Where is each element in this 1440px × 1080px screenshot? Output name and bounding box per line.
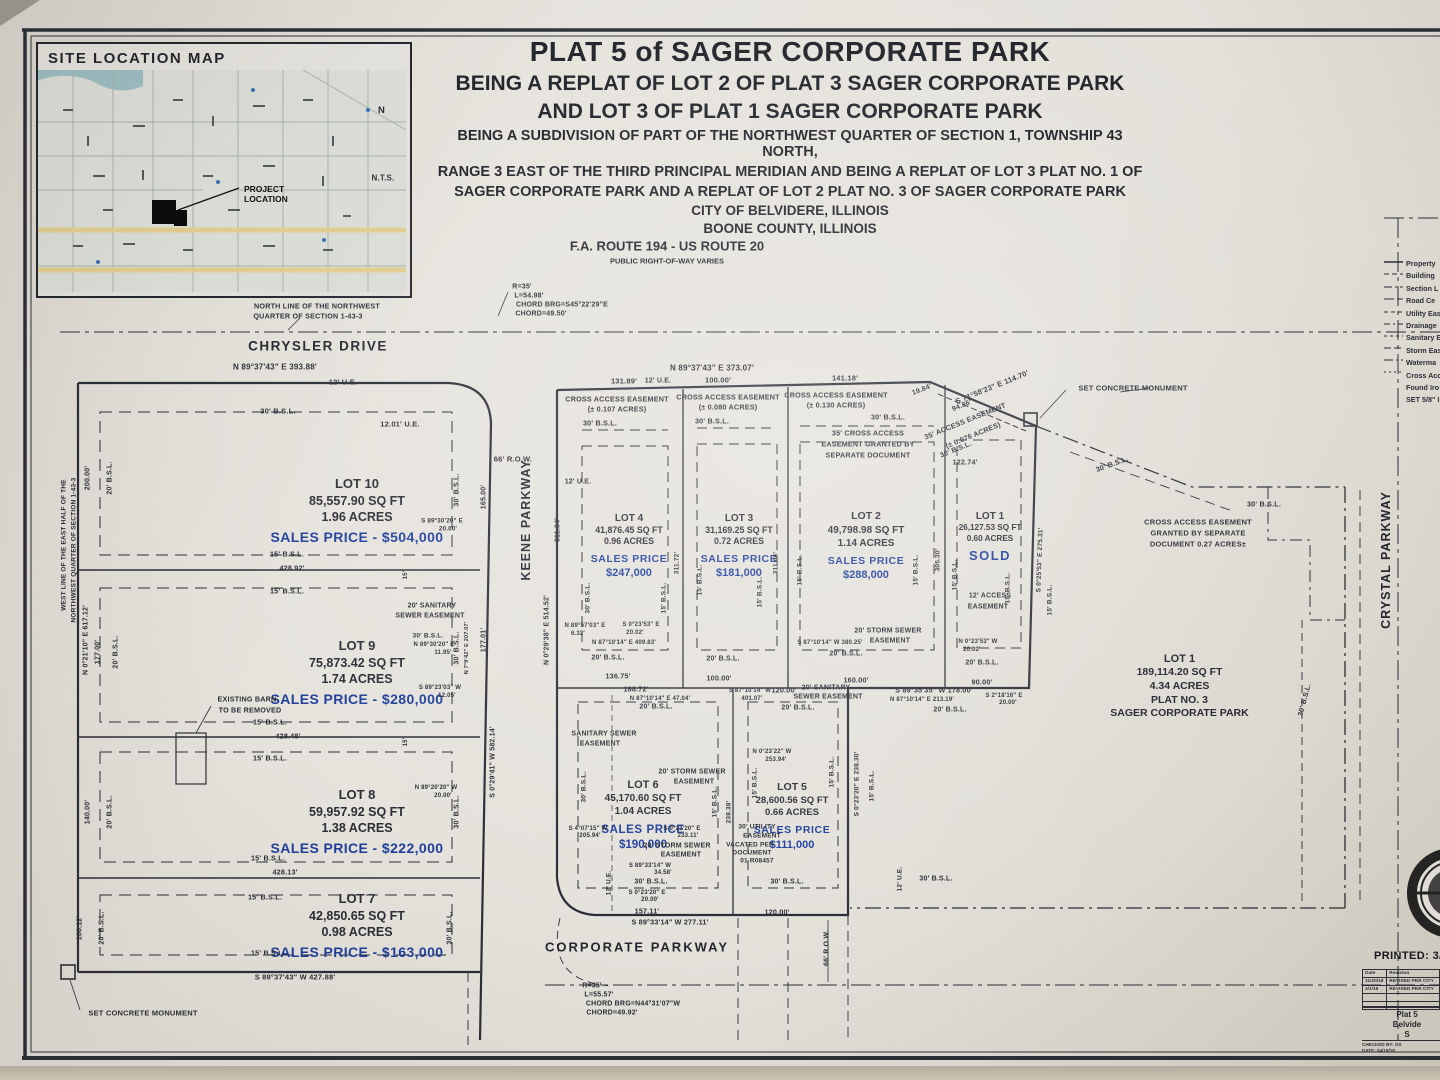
dim-label: 30' B.S.L. <box>919 876 952 883</box>
revision-cell: 3/1/19 <box>1363 986 1387 994</box>
revision-cell <box>1387 994 1440 1002</box>
printed-date: PRINTED: 3/1/2 <box>1374 950 1440 962</box>
plat-description-3: SAGER CORPORATE PARK AND A REPLAT OF LOT… <box>430 184 1150 200</box>
dim-label: 12.01' U.E. <box>380 420 419 429</box>
dim-label: 305.30' <box>935 549 942 572</box>
lot-name: LOT 1 <box>944 510 1036 523</box>
dim-label: SANITARY SEWER <box>571 731 636 738</box>
dim-label: DOCUMENT <box>732 850 771 857</box>
lot-name: LOT 10 <box>228 476 486 493</box>
dim-label: 401.07' <box>741 696 762 702</box>
lot-acres: 1.04 ACRES <box>570 805 716 818</box>
dim-label: 428.48' <box>275 732 300 741</box>
lot-card-1-plat3: LOT 1 189,114.20 SQ FT 4.34 ACRES PLAT N… <box>1077 652 1282 721</box>
dim-label: 15' B.S.L. <box>1005 573 1012 604</box>
dim-label: NORTHWEST QUARTER OF SECTION 1-43-3 <box>71 478 78 623</box>
dim-label: 20.02' <box>626 630 644 636</box>
dim-label: 12' U.E. <box>645 378 672 385</box>
lot-name: LOT 1 <box>1077 652 1282 666</box>
plat-photo: { "site_map": { "title": "SITE LOCATION … <box>0 0 1440 1080</box>
dim-label: S 89°35'35" W 178.00' <box>895 686 972 695</box>
dim-label: 20' SANITARY <box>408 603 457 610</box>
dim-label: 100.00' <box>706 674 731 683</box>
dim-label: 311.72' <box>674 552 681 574</box>
dim-label: 12' U.E. <box>897 867 904 892</box>
lot-area: 75,873.42 SQ FT <box>228 655 486 671</box>
dim-label: 428.13' <box>272 868 297 877</box>
dim-label: N 89°20'20" W <box>415 785 458 791</box>
dim-label: 238.38' <box>726 801 733 824</box>
lot-area: 59,957.92 SQ FT <box>228 804 486 820</box>
dim-label: 100.12' <box>77 916 84 940</box>
plat-description-2: RANGE 3 EAST OF THE THIRD PRINCIPAL MERI… <box>430 164 1150 180</box>
dim-label: SEWER EASEMENT <box>395 613 464 620</box>
dim-label: S 0°23'53" E <box>622 622 659 628</box>
dim-label: 233.11' <box>678 833 699 839</box>
lot-acres: 4.34 ACRES <box>1077 680 1282 694</box>
dim-label: S 89°23'03" W <box>419 685 461 691</box>
plat-city: CITY OF BELVIDERE, ILLINOIS <box>430 203 1150 218</box>
site-location-map: SITE LOCATION MAP PROJECT LOCATION <box>36 42 412 298</box>
dim-label: 122.74' <box>952 458 977 467</box>
legend-item: SET 5/8" I.P <box>1406 394 1440 406</box>
dim-label: 15' B.S.L. <box>752 768 759 799</box>
dim-label: 131.89' <box>611 377 637 386</box>
dim-label: CROSS ACCESS EASEMENT <box>565 395 668 404</box>
dim-label: 20' B.S.L. <box>591 655 624 662</box>
dim-label: EASEMENT <box>661 852 702 859</box>
dim-label: 34.58' <box>654 870 672 876</box>
dim-label: EASEMENT <box>968 604 1009 611</box>
dim-label: 15' B.S.L. <box>253 718 287 727</box>
dim-label: EASEMENT GRANTED BY <box>821 440 914 449</box>
dim-label: 30' B.S.L. <box>454 795 461 828</box>
plat-description-1: BEING A SUBDIVISION OF PART OF THE NORTH… <box>430 128 1150 160</box>
lot-name: LOT 4 <box>570 512 688 525</box>
nts-label: N.T.S. <box>372 174 395 183</box>
plat-title: PLAT 5 of SAGER CORPORATE PARK <box>430 36 1150 68</box>
dim-label: S 4°07'15" W <box>569 826 608 832</box>
road-label-crystal: CRYSTAL PARKWAY <box>1379 491 1393 629</box>
dim-label: VACATED PER <box>726 842 774 849</box>
dim-label: 35' CROSS ACCESS <box>832 429 904 438</box>
legend-item: Waterma <box>1406 357 1440 369</box>
dim-label: 30' B.S.L. <box>454 631 461 664</box>
dim-label: NORTH LINE OF THE NORTHWEST <box>254 302 380 311</box>
dim-label: 20' STORM SEWER <box>658 769 725 776</box>
dim-label: 30' B.S.L. <box>583 419 617 428</box>
dim-label: 30' B.S.L. <box>581 772 588 803</box>
lot-price-label: SALES PRICE <box>570 553 688 567</box>
dim-label: 20' B.S.L. <box>781 705 814 712</box>
dim-label: 177.00' <box>95 640 102 664</box>
dim-label: 136.75' <box>605 672 630 681</box>
dim-label: 30' B.S.L. <box>447 911 454 944</box>
dim-label: N 7°9'42" E 207.07' <box>464 622 470 675</box>
dim-label: S 87°10'14" W 380.25' <box>797 640 862 646</box>
titleblock-line: Belvide <box>1362 1020 1440 1030</box>
dim-label: 30' UTILITY <box>738 824 775 831</box>
dim-label: 66' R.O.W. <box>494 455 532 464</box>
dim-label: 428.92' <box>279 564 304 573</box>
dim-label: 15' B.S.L. <box>697 565 704 596</box>
dim-label: 20' B.S.L. <box>107 795 114 828</box>
revision-header: Date <box>1363 970 1387 978</box>
dim-label: CROSS ACCESS EASEMENT <box>1144 518 1252 527</box>
dim-label: CHORD BRG=S45°22'29"E <box>516 302 608 309</box>
dim-label: 20' B.S.L. <box>99 911 106 944</box>
checked-date: DATE: 04/19/18 <box>1362 1048 1440 1054</box>
dim-label: 15' B.S.L. <box>270 587 304 596</box>
lot-area: 49,798.98 SQ FT <box>790 524 942 537</box>
legend-column: PropertyBuildingSection LRoad CeUtility … <box>1406 258 1440 407</box>
titleblock-line: Plat 5 <box>1362 1010 1440 1020</box>
site-map-image <box>38 70 406 292</box>
dim-label: 12' U.E. <box>329 378 357 387</box>
legend-item: Section L <box>1406 283 1440 295</box>
dim-label: 20.00' <box>439 526 457 533</box>
legend-item: Sanitary E <box>1406 332 1440 344</box>
dim-label: 20' B.S.L. <box>113 635 120 668</box>
dim-label: 15' <box>403 571 409 580</box>
dim-label: 15' B.S.L. <box>869 771 876 802</box>
lot-area: 189,114.20 SQ FT <box>1077 666 1282 680</box>
dim-label: S 0°29'41" W 582.14' <box>490 726 497 797</box>
plat-subtitle-1: BEING A REPLAT OF LOT 2 OF PLAT 3 SAGER … <box>430 72 1150 96</box>
dim-label: 30' B.S.L. <box>260 407 295 416</box>
dim-label: 30' B.S.L. <box>413 633 444 640</box>
dim-label: SET CONCRETE MONUMENT <box>88 1009 197 1018</box>
lot-acres: 0.60 ACRES <box>944 534 1036 545</box>
dim-label: 15' <box>403 738 409 747</box>
legend-item: Storm Eas <box>1406 345 1440 357</box>
dim-label: 15' B.S.L. <box>1047 585 1054 616</box>
dim-label: 11.95' <box>434 650 451 656</box>
dim-label: 20.00' <box>999 700 1017 706</box>
legend-item: Utility Eas <box>1406 308 1440 320</box>
revision-header: Revision <box>1387 970 1440 978</box>
dim-label: S 0°23'20" E 238.30' <box>854 752 861 817</box>
dim-label: 15' B.S.L. <box>253 754 287 763</box>
dim-label: CROSS ACCESS EASEMENT <box>676 393 779 402</box>
dim-label: EASEMENT <box>674 779 715 786</box>
dim-label: 15' B.S.L. <box>251 854 285 863</box>
dim-label: 311.84' <box>555 518 562 542</box>
legend-item: Property <box>1406 258 1440 270</box>
revision-cell: REVISED PER CITY <box>1387 978 1440 986</box>
legend-item: Found Iro <box>1406 382 1440 394</box>
plat-subtitle-2: AND LOT 3 OF PLAT 1 SAGER CORPORATE PARK <box>430 100 1150 124</box>
dim-label: 15' B.S.L. <box>712 787 719 818</box>
dim-label: 12' U.E. <box>565 479 592 486</box>
dim-label: R=35' <box>582 983 602 990</box>
dim-label: N 0°23'53" W <box>958 639 997 645</box>
dim-label: S 89°30'20" E <box>421 518 463 525</box>
dim-label: N 87°10'14" E 409.83' <box>592 640 656 646</box>
dim-label: SEWER EASEMENT <box>793 694 862 701</box>
dim-label: SET CONCRETE MONUMENT <box>1078 384 1187 393</box>
dim-label: CHORD=49.50' <box>515 311 566 318</box>
dim-label: 30' B.S.L. <box>695 417 729 426</box>
dim-label: 200.00' <box>85 466 92 490</box>
north-arrow-letter: N <box>378 105 385 116</box>
engineer-seal <box>1410 853 1440 933</box>
dim-label: 30' B.S.L. <box>454 473 461 506</box>
dim-label: 30' B.S.L. <box>770 879 803 886</box>
titleblock-project: Plat 5 Belvide S <box>1362 1006 1440 1040</box>
road-label-corporate: CORPORATE PARKWAY <box>545 940 729 955</box>
dim-label: 15' B.S.L. <box>952 560 959 591</box>
dim-label: 20' STORM SEWER <box>854 628 921 635</box>
dim-label: 253.94' <box>765 757 786 763</box>
dim-label: 12.05' <box>438 693 456 699</box>
dim-label: TO BE REMOVED <box>219 706 282 715</box>
lot-card-4: LOT 4 41,876.45 SQ FT 0.96 ACRES SALES P… <box>570 512 688 581</box>
lot-card-1: LOT 1 26,127.53 SQ FT 0.60 ACRES SOLD <box>944 510 1036 565</box>
dim-label: S 89°33'14" W 277.11' <box>631 918 708 927</box>
dim-label: 160.00' <box>843 676 868 685</box>
revision-cell <box>1363 994 1387 1002</box>
title-block: PLAT 5 of SAGER CORPORATE PARK BEING A R… <box>430 36 1150 236</box>
dim-label: 30' B.S.L. <box>634 879 667 886</box>
lot-acres: 1.38 ACRES <box>228 820 486 836</box>
dim-label: L=54.98' <box>514 293 543 300</box>
dim-label: 188.72' <box>623 685 648 694</box>
dim-label: QUARTER OF SECTION 1-43-3 <box>253 312 362 321</box>
road-label-keene: KEENE PARKWAY <box>519 459 533 580</box>
photo-background-bottom <box>0 1066 1440 1080</box>
dim-label: 120.00' <box>764 908 789 917</box>
dim-label: 15' B.S.L. <box>797 555 804 586</box>
dim-label: 165.00' <box>481 485 488 509</box>
road-label-chrysler: CHRYSLER DRIVE <box>248 339 388 354</box>
lot-name: LOT 2 <box>790 510 942 524</box>
dim-label: WEST LINE OF THE EAST HALF OF THE <box>61 479 68 611</box>
dim-label: DOCUMENT 0.27 ACRES± <box>1150 540 1246 549</box>
project-location-line2: LOCATION <box>244 194 288 204</box>
dim-label: 66' R.O.W. <box>824 930 831 966</box>
lot-acres: 1.14 ACRES <box>790 537 942 550</box>
dim-label: S 2°18'16" E <box>985 693 1022 699</box>
dim-label: 205.94' <box>579 833 600 839</box>
dim-label: N 89°37'43" E 373.07' <box>670 364 754 373</box>
dim-label: EASEMENT <box>743 833 781 840</box>
lot-acres: 0.72 ACRES <box>688 536 790 547</box>
dim-label: N 0°21'10" E 617.12' <box>83 605 90 675</box>
dim-label: 30' B.S.L. <box>871 413 905 422</box>
dim-label: 311.66' <box>773 552 780 574</box>
dim-label: 15' B.S.L. <box>829 757 836 788</box>
dim-label: N 87°10'14" E 213.19' <box>890 697 954 703</box>
dim-label: S 89°33'14" W <box>629 863 671 869</box>
dim-label: 157.11' <box>635 907 660 916</box>
checked-by-block: CHECKED BY: GS DATE: 04/19/18 <box>1362 1040 1440 1054</box>
legend-item: Road Ce <box>1406 295 1440 307</box>
dim-label: 01 R08457 <box>740 858 774 865</box>
dim-label: 100.00' <box>705 376 731 385</box>
revision-table: DateRevision11/20/18REVISED PER CITY3/1/… <box>1362 969 1440 1010</box>
dim-label: N 0°29'38" E 514.52' <box>544 595 551 665</box>
legend-item: Building <box>1406 270 1440 282</box>
dim-label: EASEMENT <box>870 638 911 645</box>
dim-label: 6.32' <box>571 631 585 637</box>
dim-label: GRANTED BY SEPARATE <box>1150 529 1245 538</box>
lot-name: LOT 3 <box>688 512 790 525</box>
dim-label: (± 0.080 ACRES) <box>699 403 758 412</box>
dim-label: N 89°57'03" E <box>565 623 606 629</box>
highway-row-label: PUBLIC RIGHT-OF-WAY VARIES <box>610 257 724 266</box>
dim-label: 140.00' <box>85 800 92 824</box>
legend-item: Drainage <box>1406 320 1440 332</box>
dim-label: 20.02' <box>963 647 981 653</box>
dim-label: N 87°10'14" E 47.04' <box>630 696 690 702</box>
lot-park-name: SAGER CORPORATE PARK <box>1077 707 1282 721</box>
dim-label: 20' B.S.L. <box>829 651 862 658</box>
dim-label: 20' B.S.L. <box>933 707 966 714</box>
dim-label: N 89°30'20" E <box>414 642 455 648</box>
dim-label: 20.00' <box>434 793 452 799</box>
lot-area: 41,876.45 SQ FT <box>570 525 688 536</box>
lot-area: 26,127.53 SQ FT <box>944 523 1036 534</box>
lot-acres: 0.66 ACRES <box>736 807 848 819</box>
revision-cell: REVISED PER CITY <box>1387 986 1440 994</box>
dim-label: L=55.57' <box>584 992 613 999</box>
legend-item: Cross Acc <box>1406 370 1440 382</box>
dim-label: 15' B.S.L. <box>248 893 282 902</box>
dim-label: 15' B.S.L. <box>661 583 668 614</box>
dim-label: R=35' <box>512 284 532 291</box>
plat-county: BOONE COUNTY, ILLINOIS <box>430 221 1150 236</box>
lot-plat-number: PLAT NO. 3 <box>1077 694 1282 708</box>
project-location-label: PROJECT LOCATION <box>244 184 288 204</box>
dim-label: CHORD=49.92' <box>586 1010 637 1017</box>
dim-label: S 0°23'20" E <box>663 826 700 832</box>
dim-label: 15' B.S.L. <box>913 555 920 586</box>
dim-label: 12' U.E. <box>606 871 613 896</box>
dim-label: 30' B.S.L. <box>585 583 592 614</box>
site-map-title: SITE LOCATION MAP <box>48 50 226 67</box>
dim-label: (± 0.107 ACRES) <box>588 405 647 414</box>
dim-label: 15' B.S.L. <box>757 577 764 608</box>
lot-area: 31,169.25 SQ FT <box>688 525 790 536</box>
dim-label: EXISTING BARN <box>218 695 277 704</box>
dim-label: S 89°37'43" W 427.88' <box>255 973 336 982</box>
dim-label: 177.01' <box>481 628 488 652</box>
lot-area: 85,557.90 SQ FT <box>228 493 486 509</box>
dim-label: S 87°10'14" W <box>729 688 771 694</box>
lot-price: $247,000 <box>570 566 688 580</box>
dim-label: S 0°23'20" E <box>628 890 665 896</box>
dim-label: N 89°37'43" E 393.88' <box>233 363 317 372</box>
dim-label: CROSS ACCESS EASEMENT <box>784 391 887 400</box>
dim-label: 20' STORM SEWER <box>643 843 710 850</box>
dim-label: 20' B.S.L. <box>107 461 114 494</box>
dim-label: 20' SANITARY <box>802 685 851 692</box>
lot-card-10: LOT 10 85,557.90 SQ FT 1.96 ACRES SALES … <box>228 476 486 547</box>
dim-label: 20' B.S.L. <box>639 704 672 711</box>
revision-cell: 11/20/18 <box>1363 978 1387 986</box>
dim-label: 15' B.S.L. <box>270 550 304 559</box>
dim-label: 20.00' <box>641 897 659 903</box>
titleblock-line: S <box>1362 1030 1440 1040</box>
project-location-line1: PROJECT <box>244 184 288 194</box>
dim-label: 141.18' <box>832 374 858 383</box>
dim-label: N 0°23'22" W <box>752 749 791 755</box>
highway-label: F.A. ROUTE 194 - US ROUTE 20 <box>570 239 764 254</box>
dim-label: 15' B.S.L. <box>251 949 285 958</box>
dim-label: 20' B.S.L. <box>706 656 739 663</box>
lot-acres: 0.96 ACRES <box>570 536 688 547</box>
dim-label: 90.00' <box>972 678 993 687</box>
dim-label: 20' B.S.L. <box>965 660 998 667</box>
dim-label: SEPARATE DOCUMENT <box>826 451 911 460</box>
dim-label: CHORD BRG=N44°31'07"W <box>586 1001 680 1008</box>
plat-sheet: SITE LOCATION MAP PROJECT LOCATION N N.T… <box>0 0 1440 1080</box>
dim-label: 30' B.S.L. <box>1247 500 1281 509</box>
lot-area: 45,170.60 SQ FT <box>570 792 716 805</box>
dim-label: EASEMENT <box>580 741 621 748</box>
dim-label: (± 0.130 ACRES) <box>807 401 866 410</box>
